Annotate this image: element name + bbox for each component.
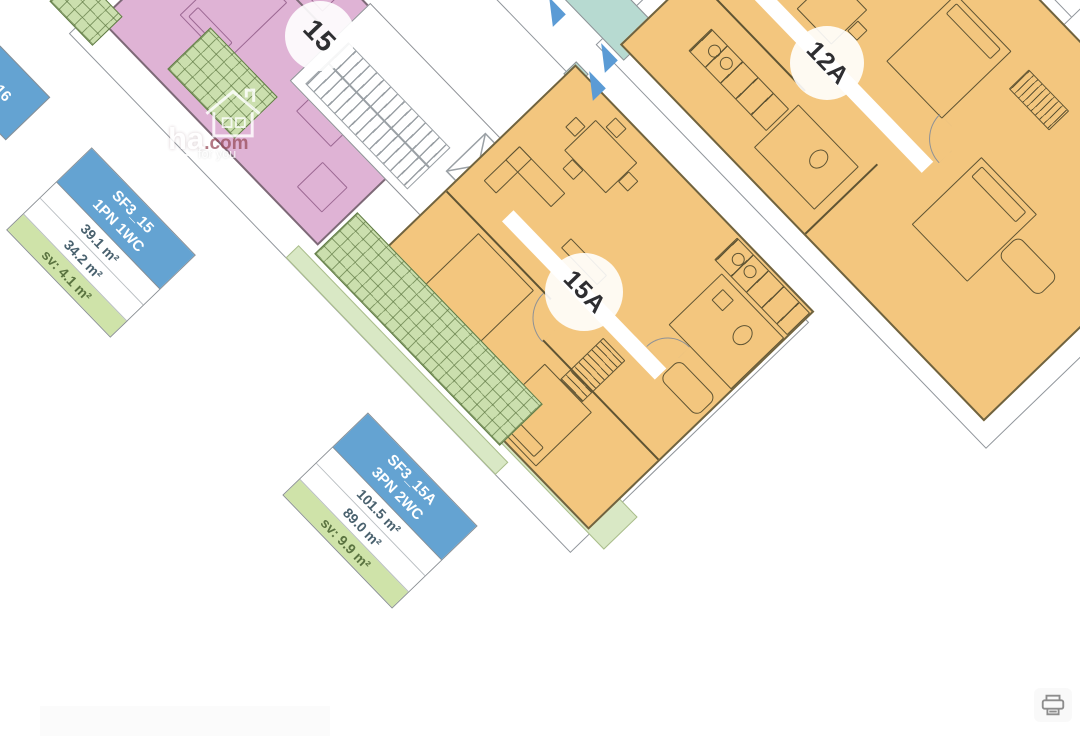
print-button[interactable] [1034,688,1072,722]
unit-label-12a-text: 12A [800,35,855,90]
faint-artifact [40,706,330,736]
pillow [971,166,1026,222]
floorplan-canvas: 15 12A 15A 16 SF3_15 1PN 1WC 39.1 m² 34.… [0,0,1080,754]
cabinet [297,162,348,213]
printer-icon [1039,692,1067,718]
info-box-fragment-16-text: 16 [0,81,15,105]
unit-label-15a: 15A [545,253,623,331]
pillow [946,3,1001,59]
unit-label-15a-text: 15A [557,264,612,319]
unit-label-12a: 12A [790,26,864,100]
info-box-sf3-15: SF3_15 1PN 1WC 39.1 m² 34.2 m² sv: 4.1 m… [6,147,196,338]
triangle-arrow-icon [535,0,567,28]
info-box-sf3-15a: SF3_15A 3PN 2WC 101.5 m² 89.0 m² sv: 9.9… [282,412,477,608]
unit-label-15-text: 15 [297,13,343,59]
wardrobe [1009,69,1069,130]
kitchen-counter [688,28,789,131]
info-box-fragment-16: 16 [0,46,50,141]
bathtub [997,235,1058,297]
unit-label-15: 15 [285,1,355,71]
bed [886,0,1011,119]
